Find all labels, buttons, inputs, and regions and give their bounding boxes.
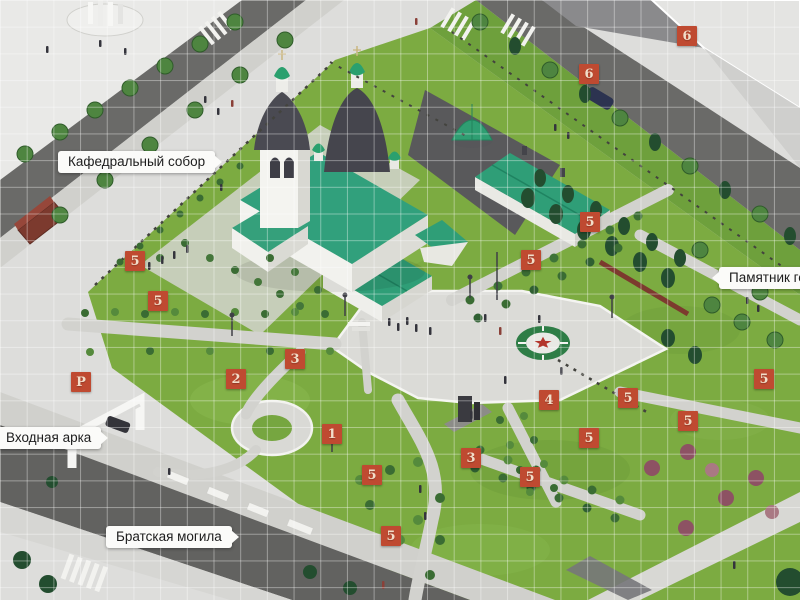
map-marker-5[interactable]: 5 bbox=[381, 526, 401, 546]
map-marker-P[interactable]: P bbox=[71, 372, 91, 392]
map-marker-6[interactable]: 6 bbox=[579, 64, 599, 84]
map-marker-1[interactable]: 1 bbox=[322, 424, 342, 444]
map-marker-3[interactable]: 3 bbox=[285, 349, 305, 369]
map-marker-5[interactable]: 5 bbox=[754, 369, 774, 389]
map-marker-5[interactable]: 5 bbox=[579, 428, 599, 448]
map-marker-4[interactable]: 4 bbox=[539, 390, 559, 410]
map-marker-5[interactable]: 5 bbox=[125, 251, 145, 271]
label-mass-grave: Братская могила bbox=[106, 526, 232, 548]
markers-layer: 665555321453555555P bbox=[0, 0, 800, 600]
map-marker-5[interactable]: 5 bbox=[618, 388, 638, 408]
map-marker-2[interactable]: 2 bbox=[226, 369, 246, 389]
label-cathedral: Кафедральный собор bbox=[58, 151, 215, 173]
map-marker-6[interactable]: 6 bbox=[677, 26, 697, 46]
map-marker-5[interactable]: 5 bbox=[362, 465, 382, 485]
map-marker-5[interactable]: 5 bbox=[148, 291, 168, 311]
label-monument: Памятник гер bbox=[719, 267, 800, 289]
map-marker-5[interactable]: 5 bbox=[678, 411, 698, 431]
siteplan-page: 665555321453555555P Кафедральный собор В… bbox=[0, 0, 800, 600]
map-marker-5[interactable]: 5 bbox=[520, 467, 540, 487]
label-entrance-arch: Входная арка bbox=[0, 427, 101, 449]
map-marker-5[interactable]: 5 bbox=[580, 212, 600, 232]
map-marker-5[interactable]: 5 bbox=[521, 250, 541, 270]
map-marker-3[interactable]: 3 bbox=[461, 448, 481, 468]
